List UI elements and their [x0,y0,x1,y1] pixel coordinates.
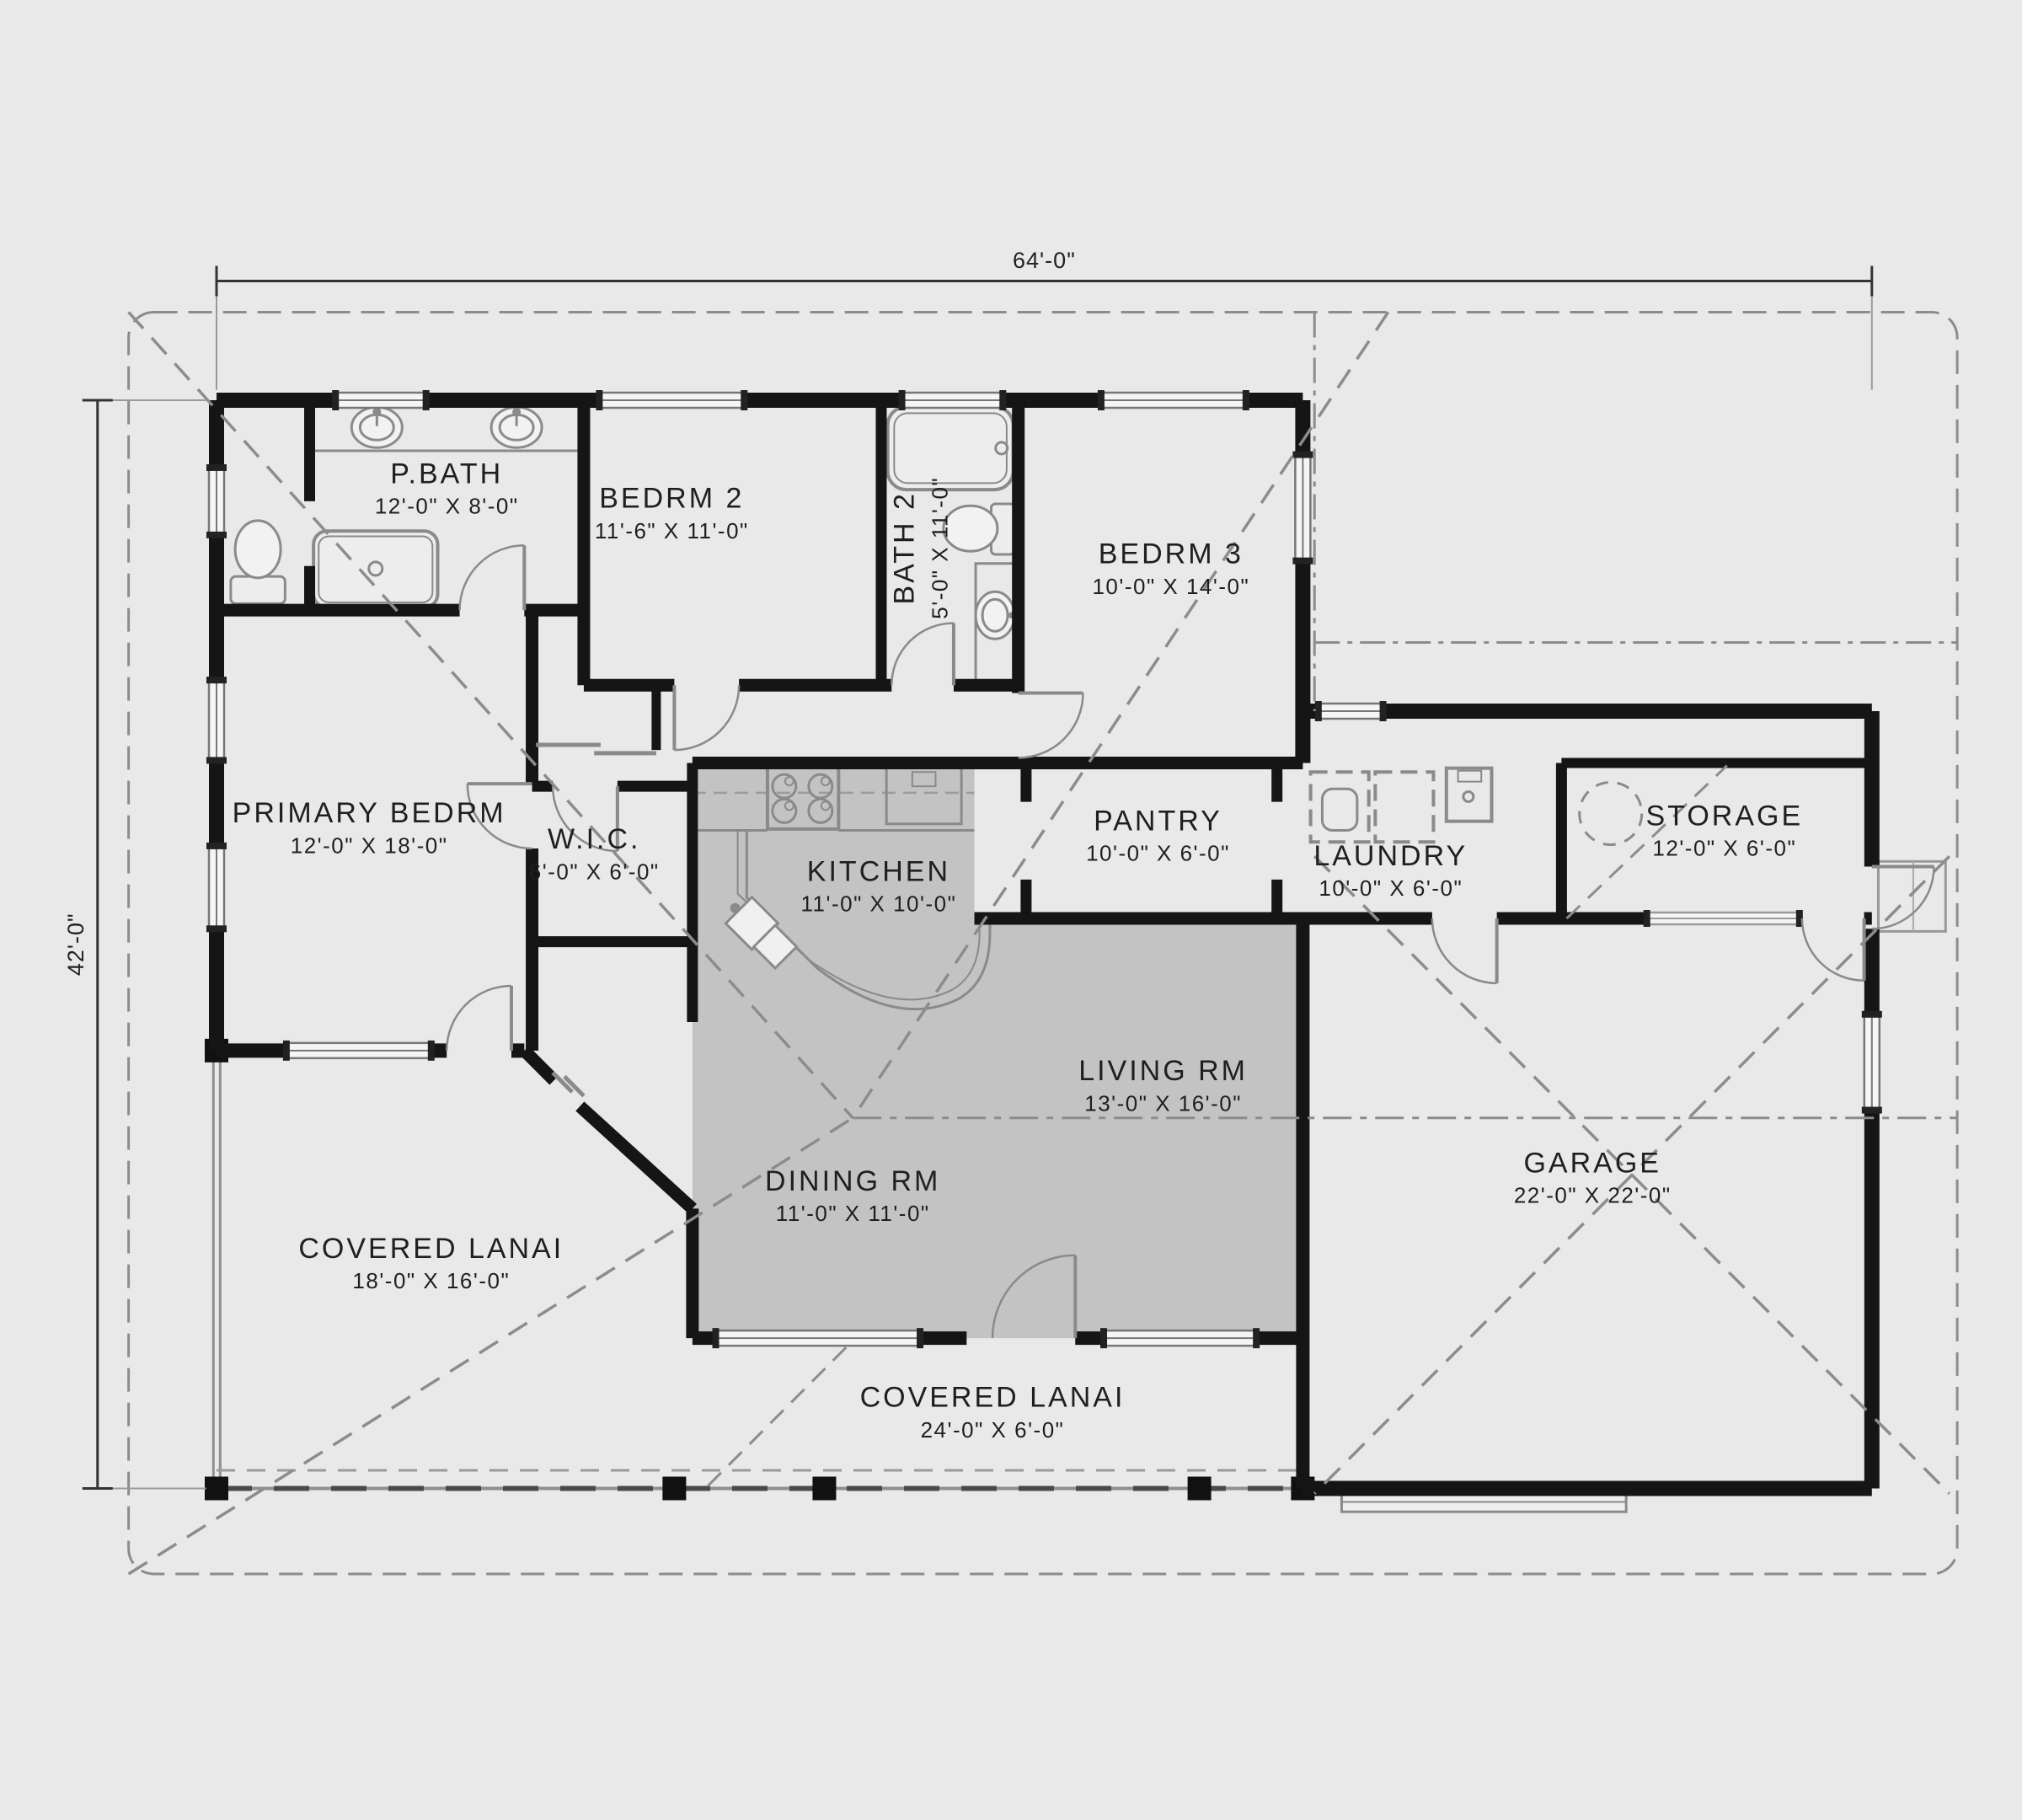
room-label-bedrm2: BEDRM 2 [599,483,744,515]
room-label-pbath: P.BATH [390,458,503,490]
room-size-bath2: 5'-0" X 11'-0" [927,477,952,619]
room-label-living: LIVING RM [1078,1055,1248,1087]
dimension-label-top: 64'-0" [1013,248,1076,273]
room-size-pbath: 12'-0" X 8'-0" [375,494,519,519]
floor-plan-canvas: 64'-0"42'-0"P.BATH12'-0" X 8'-0"BEDRM 21… [0,0,2022,1820]
room-size-primary: 12'-0" X 18'-0" [291,833,448,859]
room-size-wic: 6'-0" X 6'-0" [529,859,660,884]
room-label-wic: W.I.C. [548,823,641,855]
room-label-kitchen: KITCHEN [807,855,950,887]
room-size-lanai_left: 18'-0" X 16'-0" [352,1268,510,1293]
room-size-dining: 11'-0" X 11'-0" [776,1201,930,1226]
room-size-garage: 22'-0" X 22'-0" [1514,1183,1672,1208]
room-label-bath2: BATH 2 [888,491,920,605]
room-label-primary: PRIMARY BEDRM [233,797,506,829]
room-label-garage: GARAGE [1523,1147,1661,1179]
room-label-pantry: PANTRY [1094,805,1222,837]
room-size-laundry: 10'-0" X 6'-0" [1319,875,1463,901]
room-size-lanai_bottom: 24'-0" X 6'-0" [921,1417,1065,1443]
room-label-bedrm3: BEDRM 3 [1099,538,1244,570]
room-size-storage: 12'-0" X 6'-0" [1652,836,1796,861]
room-label-laundry: LAUNDRY [1313,840,1468,872]
room-label-lanai_bottom: COVERED LANAI [860,1382,1126,1414]
dimension-label-left: 42'-0" [63,913,88,976]
floor-plan-page: 64'-0"42'-0"P.BATH12'-0" X 8'-0"BEDRM 21… [0,0,2022,1820]
room-size-kitchen: 11'-0" X 10'-0" [801,891,957,917]
water-heater-icon [1580,782,1642,844]
room-size-bedrm2: 11'-6" X 11'-0" [595,518,749,543]
room-label-storage: STORAGE [1645,800,1803,832]
laundry-fixtures [1311,768,1492,843]
room-label-dining: DINING RM [765,1165,940,1197]
room-size-living: 13'-0" X 16'-0" [1084,1090,1242,1116]
room-size-pantry: 10'-0" X 6'-0" [1086,841,1230,866]
room-size-bedrm3: 10'-0" X 14'-0" [1092,574,1249,599]
toilet-icon [231,521,285,604]
room-label-lanai_left: COVERED LANAI [298,1233,564,1265]
